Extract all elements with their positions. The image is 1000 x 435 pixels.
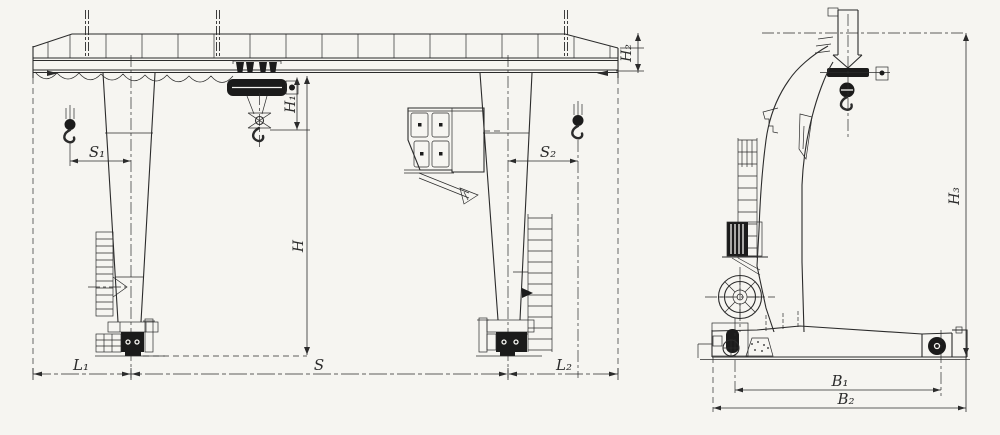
ladder-flag xyxy=(522,288,533,298)
leg-rear-edge xyxy=(802,62,833,332)
side-rear-wheel xyxy=(928,337,946,355)
right-wheel xyxy=(500,350,515,356)
panel-mark-2 xyxy=(439,123,443,127)
gantry-crane-technical-drawing: S₁ S₂ H₁ H H₂ xyxy=(0,0,1000,435)
right-leg xyxy=(480,55,532,378)
right-hook-block xyxy=(573,115,584,126)
dimension-h3: H₃ xyxy=(947,33,969,412)
ladder-rails xyxy=(528,214,552,352)
right-hook-ropes xyxy=(574,101,582,115)
right-buffer xyxy=(479,318,487,352)
right-leg-outline xyxy=(480,73,532,320)
left-wheel xyxy=(125,350,141,356)
side-elevation-view: H₃ B₁ B₂ xyxy=(698,8,970,412)
section-top-lug xyxy=(828,8,838,16)
railing-posts xyxy=(48,35,610,59)
left-hook-icon xyxy=(64,130,74,142)
right-drive-motor xyxy=(496,332,527,352)
dimension-label-h2: H₂ xyxy=(619,44,635,63)
cabinet-outline xyxy=(408,108,484,172)
dimension-label-s1: S₁ xyxy=(89,143,105,161)
leg-profile xyxy=(757,46,833,332)
dimension-bottom-chain: L₁ S L₂ xyxy=(33,356,618,380)
girder-cross-section xyxy=(762,8,966,68)
left-gearbox-grille xyxy=(96,334,121,352)
dimension-label-l2: L₂ xyxy=(555,356,572,374)
girder-ends xyxy=(33,46,618,78)
hook-left-position xyxy=(64,105,75,166)
panel-mark-1 xyxy=(418,123,422,127)
ladder-cage-bars xyxy=(742,140,752,167)
dimension-label-s2: S₂ xyxy=(540,143,556,161)
side-hook-icon xyxy=(841,97,852,110)
left-leg-outline xyxy=(103,73,155,322)
left-hook-ropes xyxy=(66,105,74,119)
dimension-label-h: H xyxy=(291,239,307,253)
right-hook-icon xyxy=(572,126,582,138)
leg-front-edge xyxy=(757,46,828,332)
pendant-dot xyxy=(880,71,885,76)
hoist-side-view xyxy=(820,14,890,137)
dimension-label-l1: L₁ xyxy=(72,356,89,374)
side-front-wheel-unit xyxy=(698,323,748,358)
left-bogie-frame xyxy=(108,322,158,332)
left-leg-joints xyxy=(105,133,153,277)
left-end-carriage xyxy=(95,319,165,356)
left-stop-arrow-icon xyxy=(47,71,58,77)
left-leg xyxy=(103,55,155,378)
panel-mark-3 xyxy=(420,152,424,156)
right-stop-arrow-icon xyxy=(597,71,608,77)
section-weld-ticks xyxy=(815,37,833,53)
left-bogie-dividers xyxy=(120,322,146,332)
base-left-bracket xyxy=(698,344,712,358)
dimension-label-b1: B₁ xyxy=(830,372,848,390)
access-ladder xyxy=(507,214,552,352)
dimension-label-h1: H₁ xyxy=(283,95,299,114)
panel-mark-4 xyxy=(439,152,443,156)
ladder-rungs xyxy=(528,218,552,350)
right-gearbox xyxy=(487,334,496,350)
dimension-h2: H₂ xyxy=(616,33,644,73)
side-rear-wheel-unit xyxy=(928,337,946,355)
hook-right-position xyxy=(572,101,583,378)
dimension-h: H xyxy=(143,76,310,356)
dimension-label-b2: B₂ xyxy=(836,390,854,408)
drawing-canvas: S₁ S₂ H₁ H H₂ xyxy=(0,0,1000,435)
cable-drum-slats xyxy=(96,239,113,309)
left-gearbox-ribs xyxy=(96,334,121,352)
trolley-hook-icon xyxy=(253,128,263,141)
platform-grille xyxy=(727,222,748,256)
hoist-motor-cap xyxy=(289,85,295,91)
hoist-ropes xyxy=(247,96,267,114)
dimension-s2: S₂ xyxy=(508,143,578,163)
dimension-label-s: S xyxy=(314,356,324,374)
front-elevation-view: S₁ S₂ H₁ H H₂ xyxy=(33,10,644,380)
left-hook-block xyxy=(65,119,76,130)
ladder-brackets xyxy=(507,272,528,334)
girder-chords xyxy=(33,58,618,73)
dimension-label-h3: H₃ xyxy=(947,187,963,206)
platform-brace xyxy=(732,258,760,275)
right-bogie-frame xyxy=(487,320,534,332)
base-gusset xyxy=(746,338,773,356)
platform xyxy=(722,222,768,275)
cable-drum xyxy=(88,232,127,316)
left-drive-motor xyxy=(121,332,144,352)
handrail xyxy=(33,34,618,48)
cabinet-top-edge xyxy=(408,108,484,172)
festoon-cable xyxy=(35,72,233,83)
dimension-s1: S₁ xyxy=(70,143,131,163)
